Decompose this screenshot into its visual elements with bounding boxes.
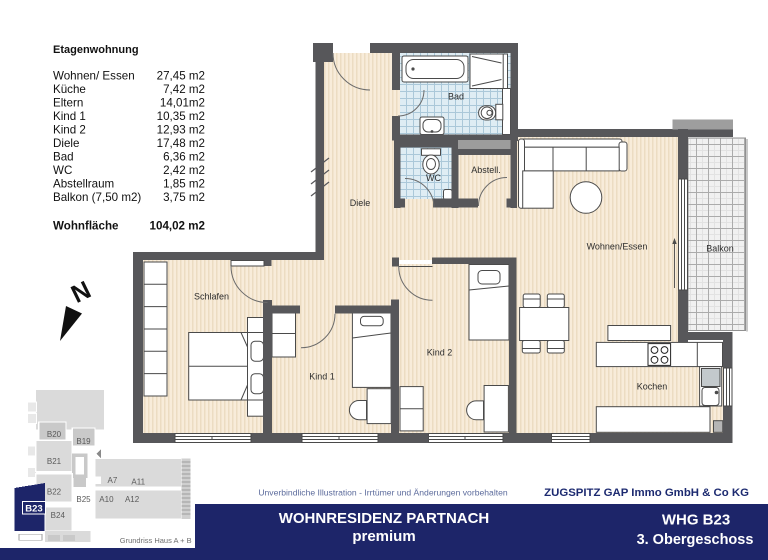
- svg-text:3,75 m2: 3,75 m2: [163, 191, 205, 204]
- svg-text:WC: WC: [53, 164, 72, 177]
- svg-text:Wohnen/Essen: Wohnen/Essen: [587, 242, 648, 252]
- svg-text:Kind 1: Kind 1: [53, 110, 86, 123]
- svg-text:Unverbindliche Illustration -: Unverbindliche Illustration - Irrtümer u…: [258, 488, 508, 498]
- svg-text:104,02 m2: 104,02 m2: [150, 220, 205, 233]
- svg-text:Kind 2: Kind 2: [53, 123, 86, 136]
- svg-text:B23: B23: [25, 504, 42, 515]
- svg-text:premium: premium: [352, 528, 415, 545]
- svg-text:27,45 m2: 27,45 m2: [157, 69, 205, 82]
- svg-text:1,85 m2: 1,85 m2: [163, 177, 205, 190]
- svg-text:7,42 m2: 7,42 m2: [163, 83, 205, 96]
- svg-text:A11: A11: [131, 478, 145, 487]
- svg-text:14,01m2: 14,01m2: [160, 96, 205, 109]
- svg-text:Wohnen/ Essen: Wohnen/ Essen: [53, 69, 135, 82]
- svg-text:WC: WC: [426, 173, 441, 183]
- svg-text:B19: B19: [76, 437, 91, 446]
- svg-text:Schlafen: Schlafen: [194, 292, 229, 302]
- svg-text:Wohnfläche: Wohnfläche: [53, 220, 119, 233]
- svg-text:B21: B21: [47, 457, 62, 466]
- svg-text:6,36 m2: 6,36 m2: [163, 150, 205, 163]
- svg-text:Kind 1: Kind 1: [309, 372, 335, 382]
- svg-text:N: N: [67, 276, 96, 309]
- svg-text:Balkon: Balkon: [706, 244, 734, 254]
- svg-text:Küche: Küche: [53, 83, 86, 96]
- svg-text:Grundriss Haus A + B: Grundriss Haus A + B: [120, 536, 192, 545]
- svg-text:Abstellraum: Abstellraum: [53, 177, 114, 190]
- svg-text:A12: A12: [125, 495, 140, 504]
- svg-text:B20: B20: [47, 430, 62, 439]
- svg-text:B22: B22: [47, 488, 62, 497]
- svg-text:WOHNRESIDENZ PARTNACH: WOHNRESIDENZ PARTNACH: [279, 510, 490, 527]
- svg-text:3. Obergeschoss: 3. Obergeschoss: [637, 532, 754, 548]
- svg-text:Eltern: Eltern: [53, 96, 83, 109]
- svg-text:Abstell.: Abstell.: [471, 165, 501, 175]
- svg-text:Diele: Diele: [350, 198, 371, 208]
- svg-text:A10: A10: [99, 495, 114, 504]
- svg-text:Bad: Bad: [53, 150, 74, 163]
- svg-text:B24: B24: [51, 511, 66, 520]
- svg-text:Balkon (7,50 m2): Balkon (7,50 m2): [53, 191, 141, 204]
- svg-text:B25: B25: [76, 495, 91, 504]
- svg-text:2,42 m2: 2,42 m2: [163, 164, 205, 177]
- svg-text:A7: A7: [108, 476, 118, 485]
- svg-text:17,48 m2: 17,48 m2: [157, 137, 205, 150]
- svg-text:10,35 m2: 10,35 m2: [157, 110, 205, 123]
- svg-text:Etagenwohnung: Etagenwohnung: [53, 44, 139, 56]
- svg-text:ZUGSPITZ GAP Immo GmbH & Co KG: ZUGSPITZ GAP Immo GmbH & Co KG: [544, 487, 749, 499]
- svg-text:WHG B23: WHG B23: [662, 512, 730, 529]
- svg-text:12,93 m2: 12,93 m2: [157, 123, 205, 136]
- svg-text:Kind 2: Kind 2: [427, 348, 453, 358]
- svg-text:Kochen: Kochen: [637, 382, 668, 392]
- svg-text:Bad: Bad: [448, 92, 464, 102]
- svg-text:Diele: Diele: [53, 137, 79, 150]
